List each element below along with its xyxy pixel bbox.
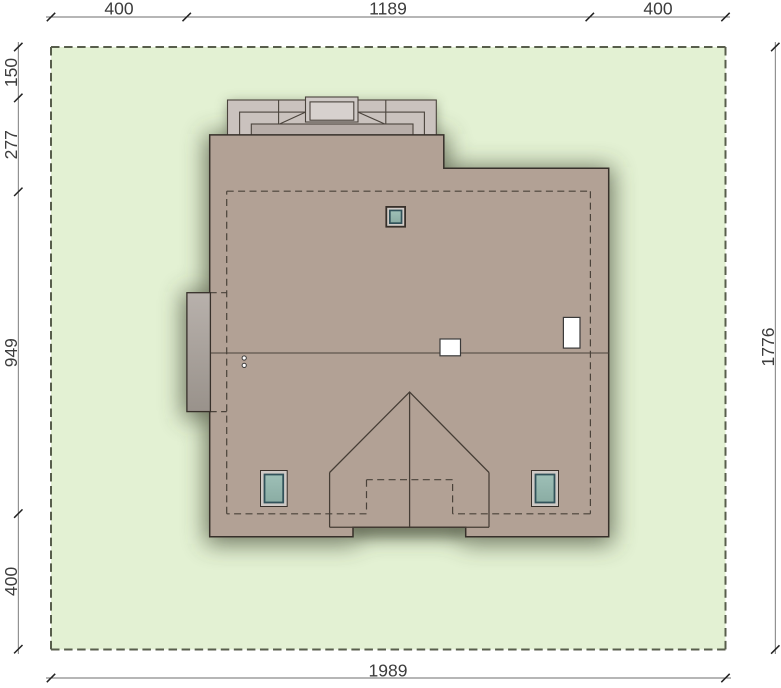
svg-text:400: 400 — [643, 0, 672, 19]
svg-text:949: 949 — [1, 338, 21, 367]
svg-text:150: 150 — [1, 58, 21, 87]
svg-text:1776: 1776 — [758, 328, 778, 367]
svg-text:277: 277 — [1, 130, 21, 159]
svg-text:400: 400 — [1, 567, 21, 596]
svg-text:1189: 1189 — [369, 0, 407, 19]
svg-text:1989: 1989 — [369, 660, 408, 680]
svg-text:400: 400 — [104, 0, 133, 19]
